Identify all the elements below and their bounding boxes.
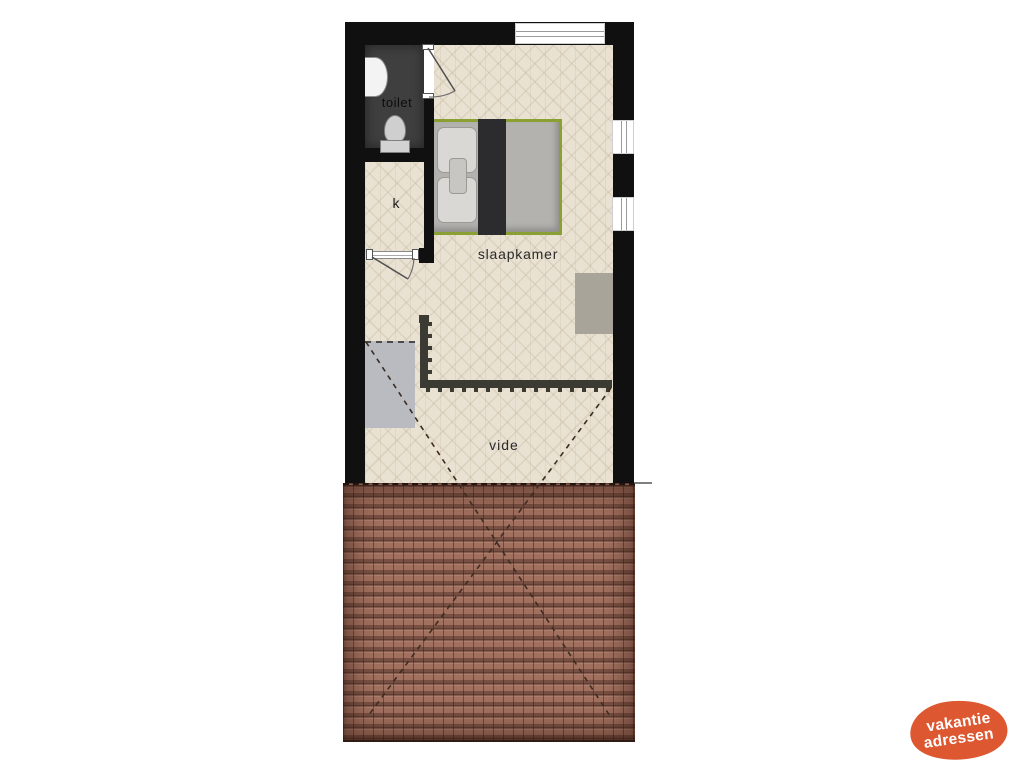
- dresser: [575, 273, 613, 334]
- room-label-slaapkamer: slaapkamer: [458, 246, 578, 262]
- toilet-tank-symbol: [380, 140, 410, 153]
- railing-balusters: [426, 388, 612, 392]
- room-label-toilet: toilet: [367, 95, 427, 110]
- wall-left: [345, 22, 365, 483]
- door-jamb: [412, 249, 419, 260]
- roof-tiles: [343, 483, 635, 742]
- vide-railing-vertical: [420, 317, 428, 386]
- floorplan-canvas: toilet k slaapkamer vide vakantie adress…: [0, 0, 1024, 768]
- room-label-vide: vide: [454, 437, 554, 453]
- wall-right: [613, 22, 634, 483]
- toilet-symbol: [384, 115, 406, 143]
- bed-cushion: [449, 158, 467, 194]
- room-label-k: k: [380, 195, 412, 211]
- vide-railing-horizontal: [420, 380, 612, 388]
- bed-blanket: [478, 119, 506, 235]
- stairs-area: [365, 341, 415, 428]
- window-top: [515, 23, 605, 44]
- door-jamb: [366, 249, 373, 260]
- railing-balusters: [428, 322, 432, 382]
- window-right-upper: [612, 120, 634, 154]
- wall-stub: [419, 248, 434, 263]
- vakantieadressen-logo: vakantie adressen: [905, 697, 1011, 761]
- door-jamb: [422, 44, 434, 50]
- window-right-lower: [612, 197, 634, 231]
- closet-door-opening: [373, 251, 412, 259]
- toilet-door-opening: [424, 46, 434, 96]
